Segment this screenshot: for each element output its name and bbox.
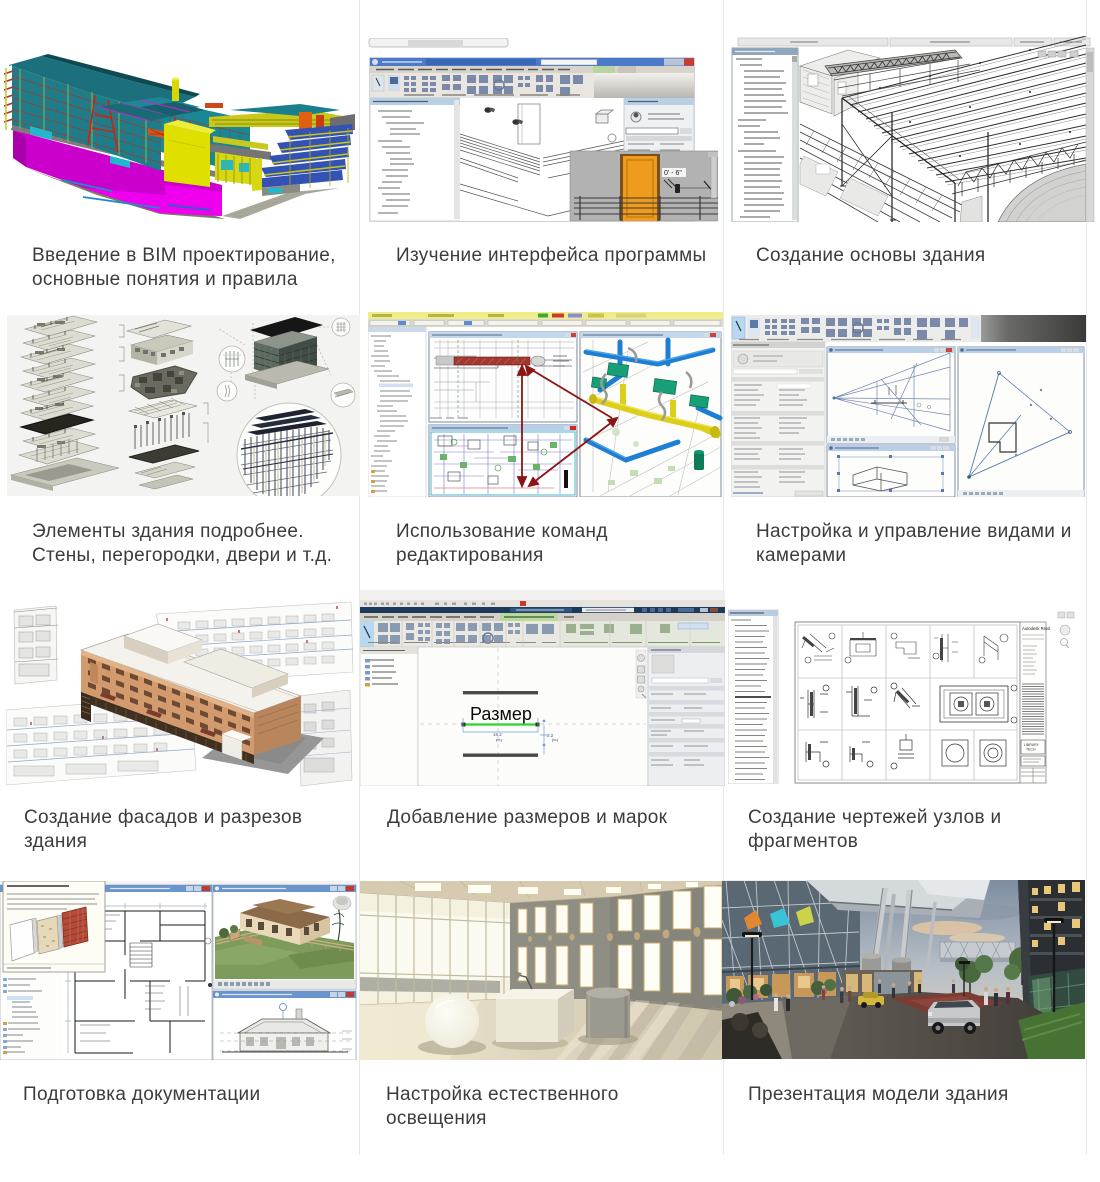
svg-text:0' - 6": 0' - 6" <box>664 170 682 177</box>
svg-text:РЧ: РЧ <box>552 738 558 743</box>
svg-text:Autodesk Revit: Autodesk Revit <box>1022 626 1051 631</box>
svg-text:16.2: 16.2 <box>493 732 502 737</box>
svg-text:Размер: Размер <box>470 704 532 724</box>
svg-text:РЧ: РЧ <box>496 738 502 743</box>
svg-text:LIBRARY: LIBRARY <box>1024 743 1040 747</box>
svg-text:TECH: TECH <box>1026 748 1036 752</box>
